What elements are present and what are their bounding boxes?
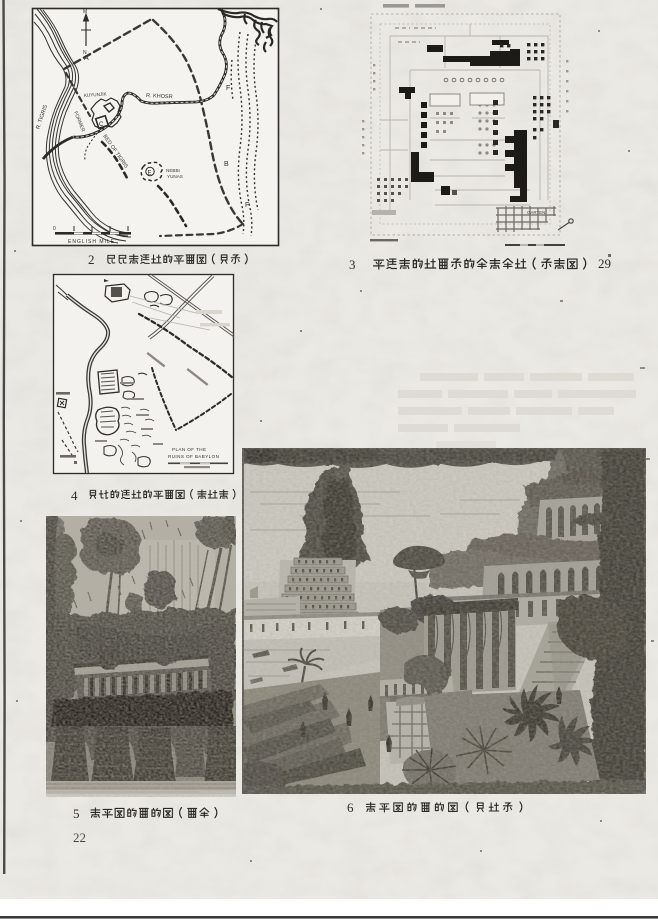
svg-text:F: F: [245, 202, 249, 209]
svg-text:GARTEN: GARTEN: [527, 210, 545, 215]
svg-text:22: 22: [73, 830, 86, 845]
svg-text:B: B: [224, 161, 229, 168]
svg-text:2: 2: [88, 252, 95, 267]
svg-text:6: 6: [347, 800, 354, 815]
svg-text:M: M: [83, 9, 87, 15]
svg-text:29: 29: [598, 256, 611, 271]
svg-text:YUNAS: YUNAS: [167, 174, 183, 179]
svg-text:RUINS OF BABYLON: RUINS OF BABYLON: [168, 454, 219, 459]
svg-text:5: 5: [73, 806, 80, 821]
svg-text:C: C: [99, 122, 104, 128]
svg-text:NEBBI: NEBBI: [166, 168, 180, 173]
svg-text:PLAN OF THE: PLAN OF THE: [172, 447, 206, 452]
svg-text:3: 3: [349, 257, 356, 272]
svg-text:E: E: [148, 171, 152, 177]
svg-text:ENGLISH MILE: ENGLISH MILE: [68, 239, 115, 245]
svg-text:A: A: [84, 55, 89, 62]
svg-text:F: F: [226, 85, 230, 92]
svg-text:0: 0: [53, 226, 56, 232]
svg-text:4: 4: [71, 488, 78, 503]
